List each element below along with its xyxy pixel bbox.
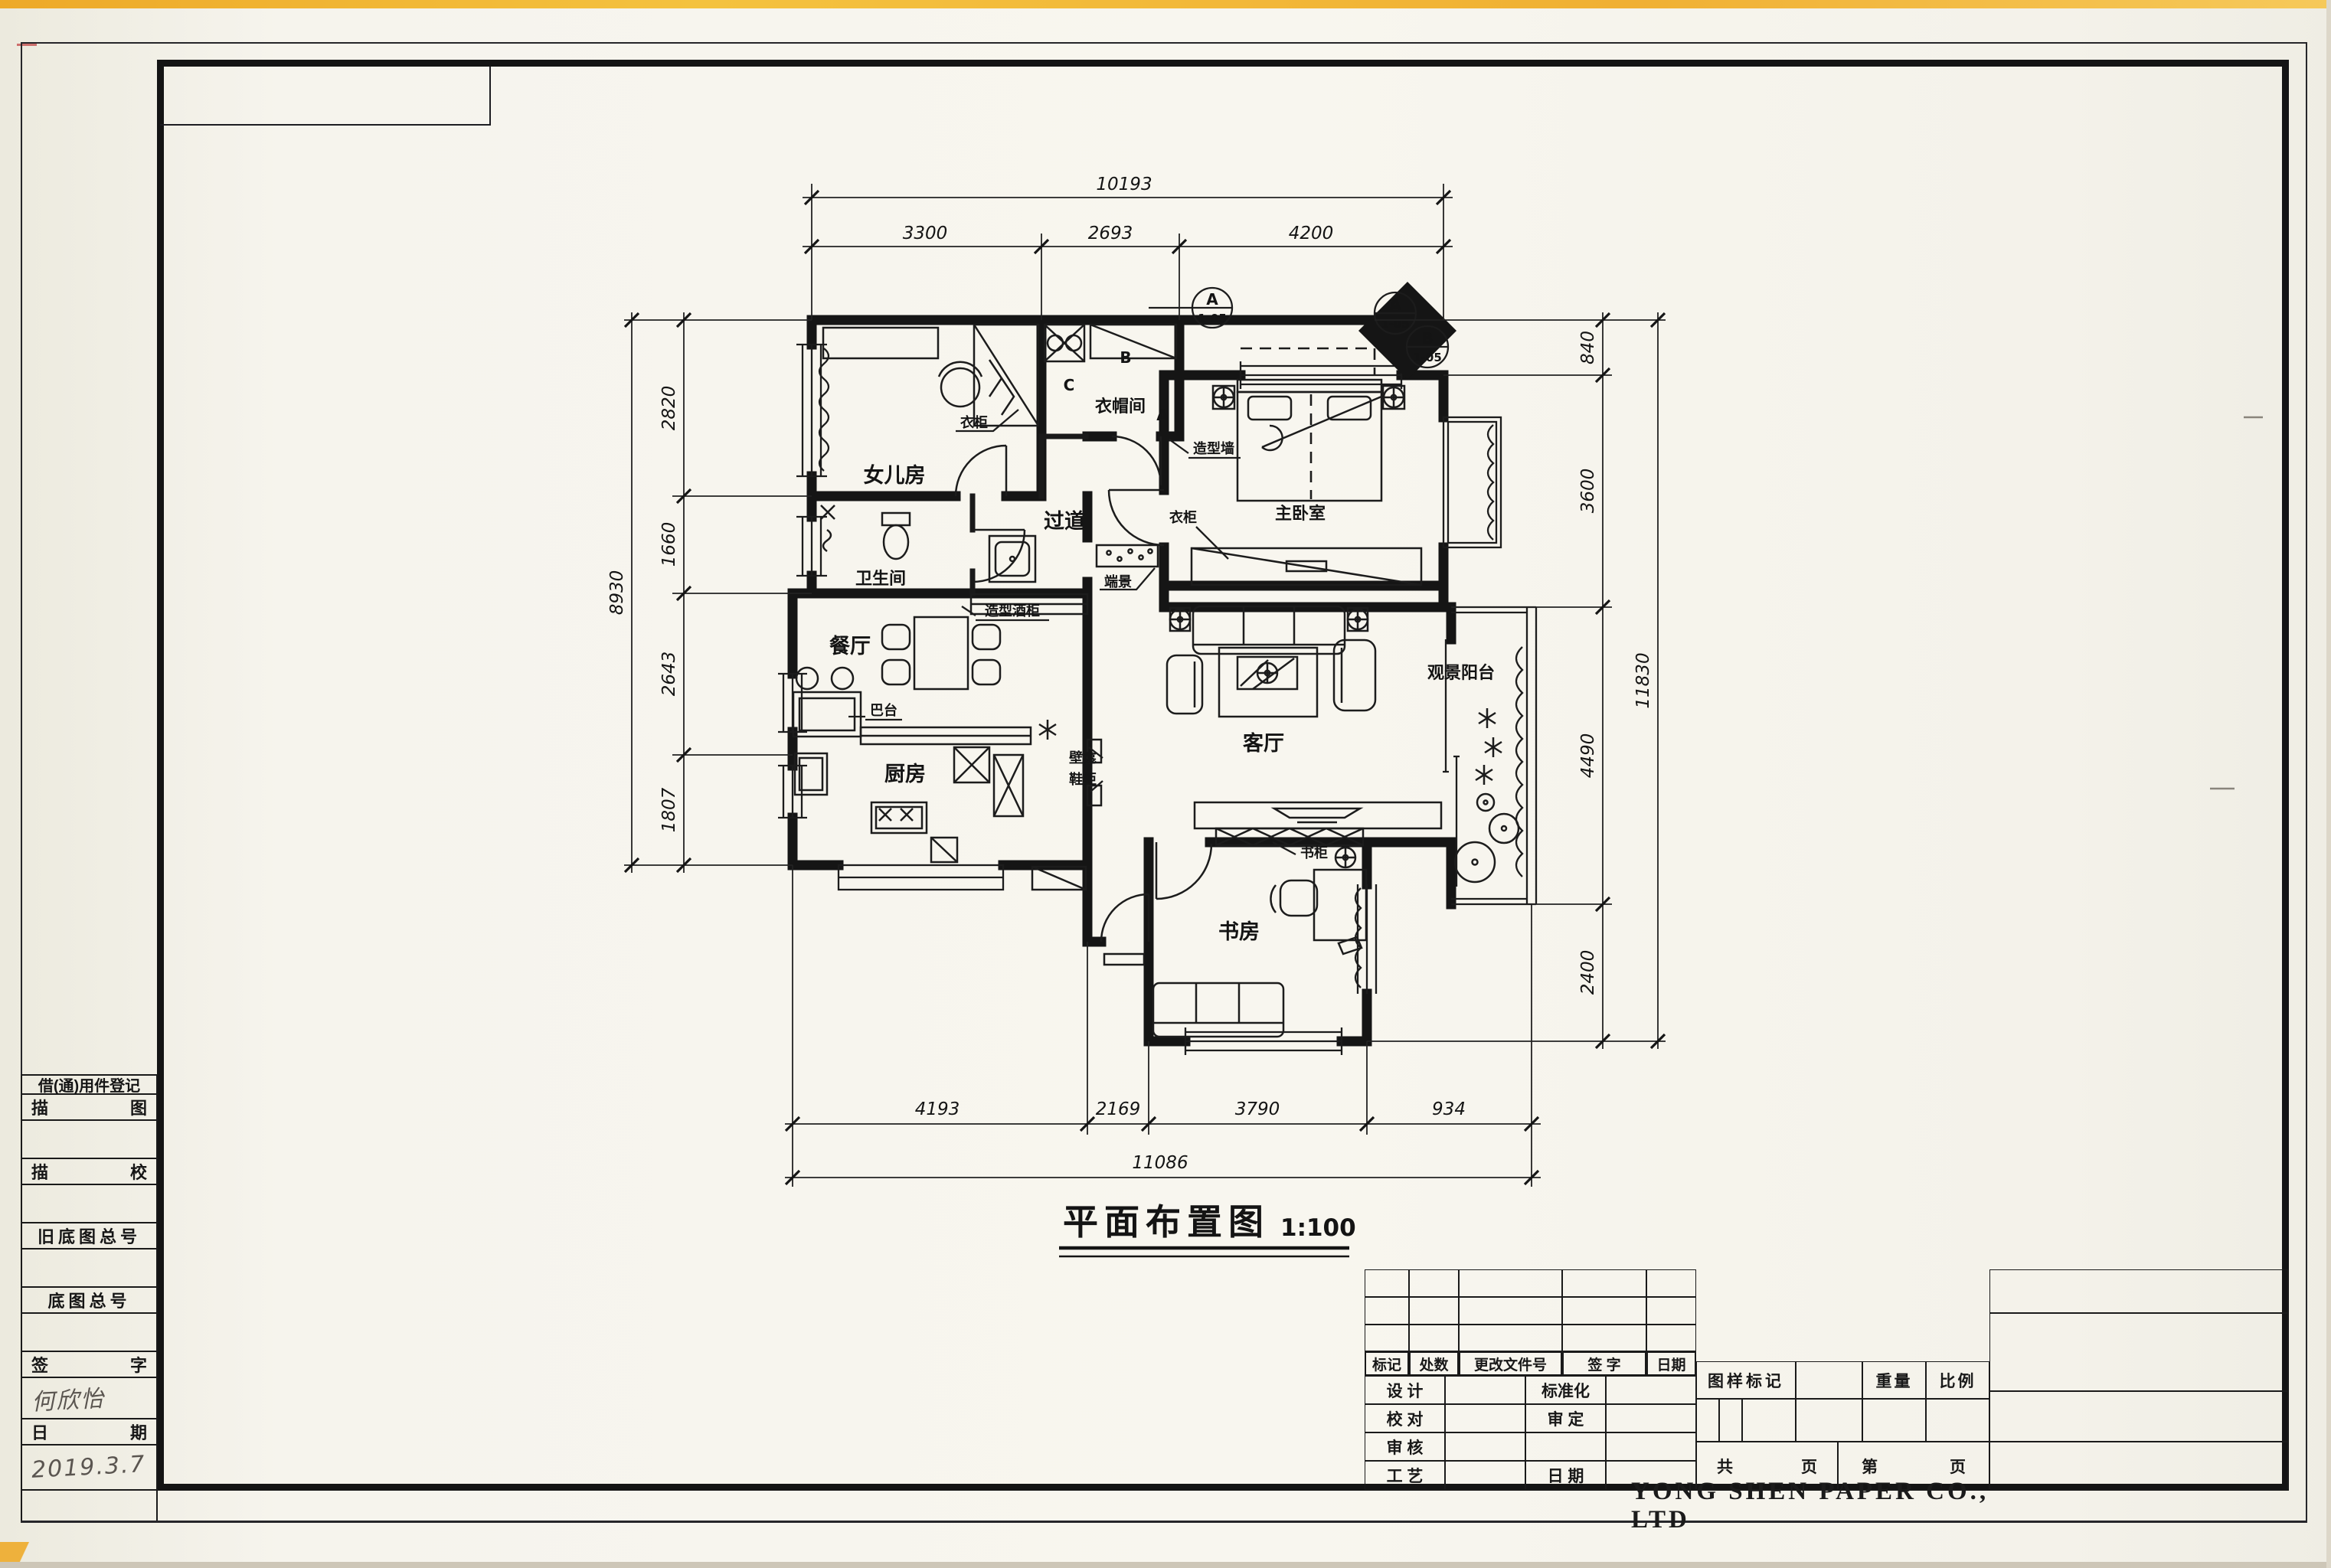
- dim-bottom-1: 4193: [915, 1099, 960, 1119]
- sidebar-cell-empty: [22, 1248, 156, 1286]
- sidebar-row-old-base-no: 旧底图总号: [22, 1222, 156, 1248]
- tb-weight: 重量: [1862, 1361, 1926, 1399]
- label-wine-cabinet: 造型酒柜: [985, 603, 1040, 619]
- fold-marks: [2210, 417, 2263, 789]
- sidebar-trace2-label: 描: [31, 1159, 48, 1184]
- sidebar-date-label2: 期: [130, 1419, 147, 1444]
- room-label-kitchen: 厨房: [884, 763, 926, 786]
- dim-right-3: 4490: [1578, 733, 1598, 779]
- tb-page-label2: 页: [1950, 1455, 1966, 1478]
- label-bar-counter: 巴台: [870, 702, 897, 718]
- label-end-scene: 端景: [1104, 574, 1132, 590]
- room-label-dining: 餐厅: [829, 635, 871, 658]
- sidebar-row-signature: 签 字: [22, 1351, 156, 1377]
- sidebar-signature-value: 何欣怡: [22, 1377, 156, 1418]
- section-m2-letter: A: [1389, 296, 1401, 314]
- tb-review: 审 核: [1365, 1432, 1445, 1461]
- section-m3-letter: B: [1421, 329, 1433, 348]
- label-shoe-cabinet: 鞋柜: [1069, 771, 1097, 787]
- handwritten-date: 2019.3.7: [31, 1451, 146, 1484]
- tb-header-mark: 标记: [1365, 1351, 1409, 1376]
- drawing-title: 平面布置图 1:100: [1059, 1202, 1356, 1256]
- dim-left-1: 2820: [659, 386, 679, 431]
- label-feature-wall: 造型墙: [1193, 440, 1234, 456]
- tb-standardization: 标准化: [1525, 1376, 1606, 1404]
- sidebar-row-trace-check: 描 校: [22, 1158, 156, 1184]
- dim-top-2: 2693: [1088, 224, 1133, 243]
- sidebar-cell-empty: [22, 1312, 156, 1351]
- room-label-living: 客厅: [1243, 731, 1284, 755]
- tb-header-count: 处数: [1409, 1351, 1459, 1376]
- sidebar-register-header: 借(通)用件登记: [22, 1074, 156, 1093]
- tb-proofread: 校 对: [1365, 1404, 1445, 1432]
- tb-date2: 日 期: [1525, 1461, 1606, 1490]
- sidebar-draw-label: 图: [130, 1095, 147, 1119]
- floor-plan-canvas: A 1-05 A 1-05 B 1-05 B C A 女儿房 衣帽间 过道 卫生…: [0, 0, 2331, 1568]
- tb-header-sign: 签 字: [1562, 1351, 1646, 1376]
- elevation-letter-b: B: [1120, 348, 1131, 367]
- scan-right-edge: [2326, 0, 2331, 1568]
- dim-top-3: 4200: [1289, 224, 1334, 243]
- handwritten-signature: 何欣怡: [31, 1380, 106, 1417]
- sidebar-cell-empty: [22, 1489, 156, 1522]
- dim-right-total: 11830: [1633, 652, 1653, 708]
- dim-right-4: 2400: [1578, 950, 1598, 995]
- dim-bottom-total: 11086: [1132, 1153, 1188, 1173]
- tb-sheet-label: 第: [1862, 1455, 1878, 1478]
- tb-total-label: 共: [1717, 1455, 1733, 1478]
- room-label-study: 书房: [1218, 920, 1260, 943]
- dim-right-2: 3600: [1578, 469, 1598, 514]
- room-label-bathroom: 卫生间: [855, 569, 906, 588]
- section-m1-letter: A: [1206, 290, 1218, 309]
- dashed-lines: [1241, 348, 1375, 499]
- section-m3-ref: 1-05: [1413, 351, 1442, 364]
- dim-right-1: 840: [1578, 331, 1598, 364]
- elevation-letter-a: A: [1156, 406, 1169, 424]
- room-label-daughter: 女儿房: [864, 463, 926, 487]
- walls-exterior: [793, 320, 1451, 1041]
- dim-top-total: 10193: [1096, 175, 1152, 194]
- sidebar-row-trace-draw: 描 图: [22, 1093, 156, 1119]
- sidebar-date-label: 日: [31, 1419, 48, 1444]
- dim-top-1: 3300: [903, 224, 948, 243]
- sidebar-cell-empty: [22, 1184, 156, 1222]
- tb-craft: 工 艺: [1365, 1461, 1445, 1490]
- sidebar-sign-label: 签: [31, 1352, 48, 1377]
- sidebar-row-base-no: 底图总号: [22, 1286, 156, 1312]
- elevation-letter-c: C: [1064, 376, 1075, 394]
- room-label-corridor: 过道: [1044, 509, 1085, 533]
- scan-bottom-edge: [0, 1562, 2331, 1568]
- plan-scale-text: 1:100: [1280, 1214, 1356, 1242]
- tb-drawing-mark: 图样标记: [1696, 1361, 1796, 1399]
- company-name: YONG SHEN PAPER CO., LTD: [1631, 1491, 2029, 1521]
- sidebar-trace-label: 描: [31, 1095, 48, 1119]
- label-wardrobe-daughter: 衣柜: [960, 414, 988, 430]
- dim-left-3: 2643: [659, 652, 679, 697]
- plan-title-text: 平面布置图: [1063, 1202, 1270, 1242]
- tb-header-date: 日期: [1646, 1351, 1696, 1376]
- dim-left-total: 8930: [607, 570, 627, 616]
- dim-left-2: 1660: [659, 522, 679, 567]
- room-label-cloakroom: 衣帽间: [1095, 397, 1146, 416]
- tb-design: 设 计: [1365, 1376, 1445, 1404]
- dim-left-4: 1807: [659, 787, 679, 832]
- dimension-chains: 10193 3300 2693 4200 2820 1660 2643 1807…: [607, 175, 1666, 1187]
- windows: [778, 345, 1536, 1055]
- room-label-balcony: 观景阳台: [1427, 663, 1495, 682]
- tb-approve: 审 定: [1525, 1404, 1606, 1432]
- dim-bottom-2: 2169: [1096, 1099, 1141, 1119]
- dim-bottom-3: 3790: [1235, 1099, 1280, 1119]
- section-m1-ref: 1-05: [1198, 312, 1227, 325]
- sidebar-sign-label2: 字: [130, 1352, 147, 1377]
- label-bookcase: 书柜: [1300, 844, 1328, 861]
- tb-scale: 比例: [1926, 1361, 1989, 1399]
- label-wall-niche: 壁龛: [1069, 750, 1097, 766]
- room-label-master: 主卧室: [1275, 504, 1326, 523]
- label-wardrobe-master: 衣柜: [1169, 509, 1197, 525]
- dim-bottom-4: 934: [1432, 1099, 1466, 1119]
- sidebar-row-date: 日 期: [22, 1418, 156, 1444]
- tb-page-label: 页: [1801, 1455, 1817, 1478]
- sidebar-cell-empty: [22, 1119, 156, 1158]
- sidebar-date-value: 2019.3.7: [22, 1444, 156, 1489]
- tb-header-change-no: 更改文件号: [1459, 1351, 1562, 1376]
- section-m2-ref: 1-05: [1381, 317, 1410, 331]
- sidebar-check-label: 校: [130, 1159, 147, 1184]
- sidebar-register: 借(通)用件登记 描 图 描 校 旧底图总号 底图总号 签 字 何欣怡 日 期 …: [21, 1074, 158, 1522]
